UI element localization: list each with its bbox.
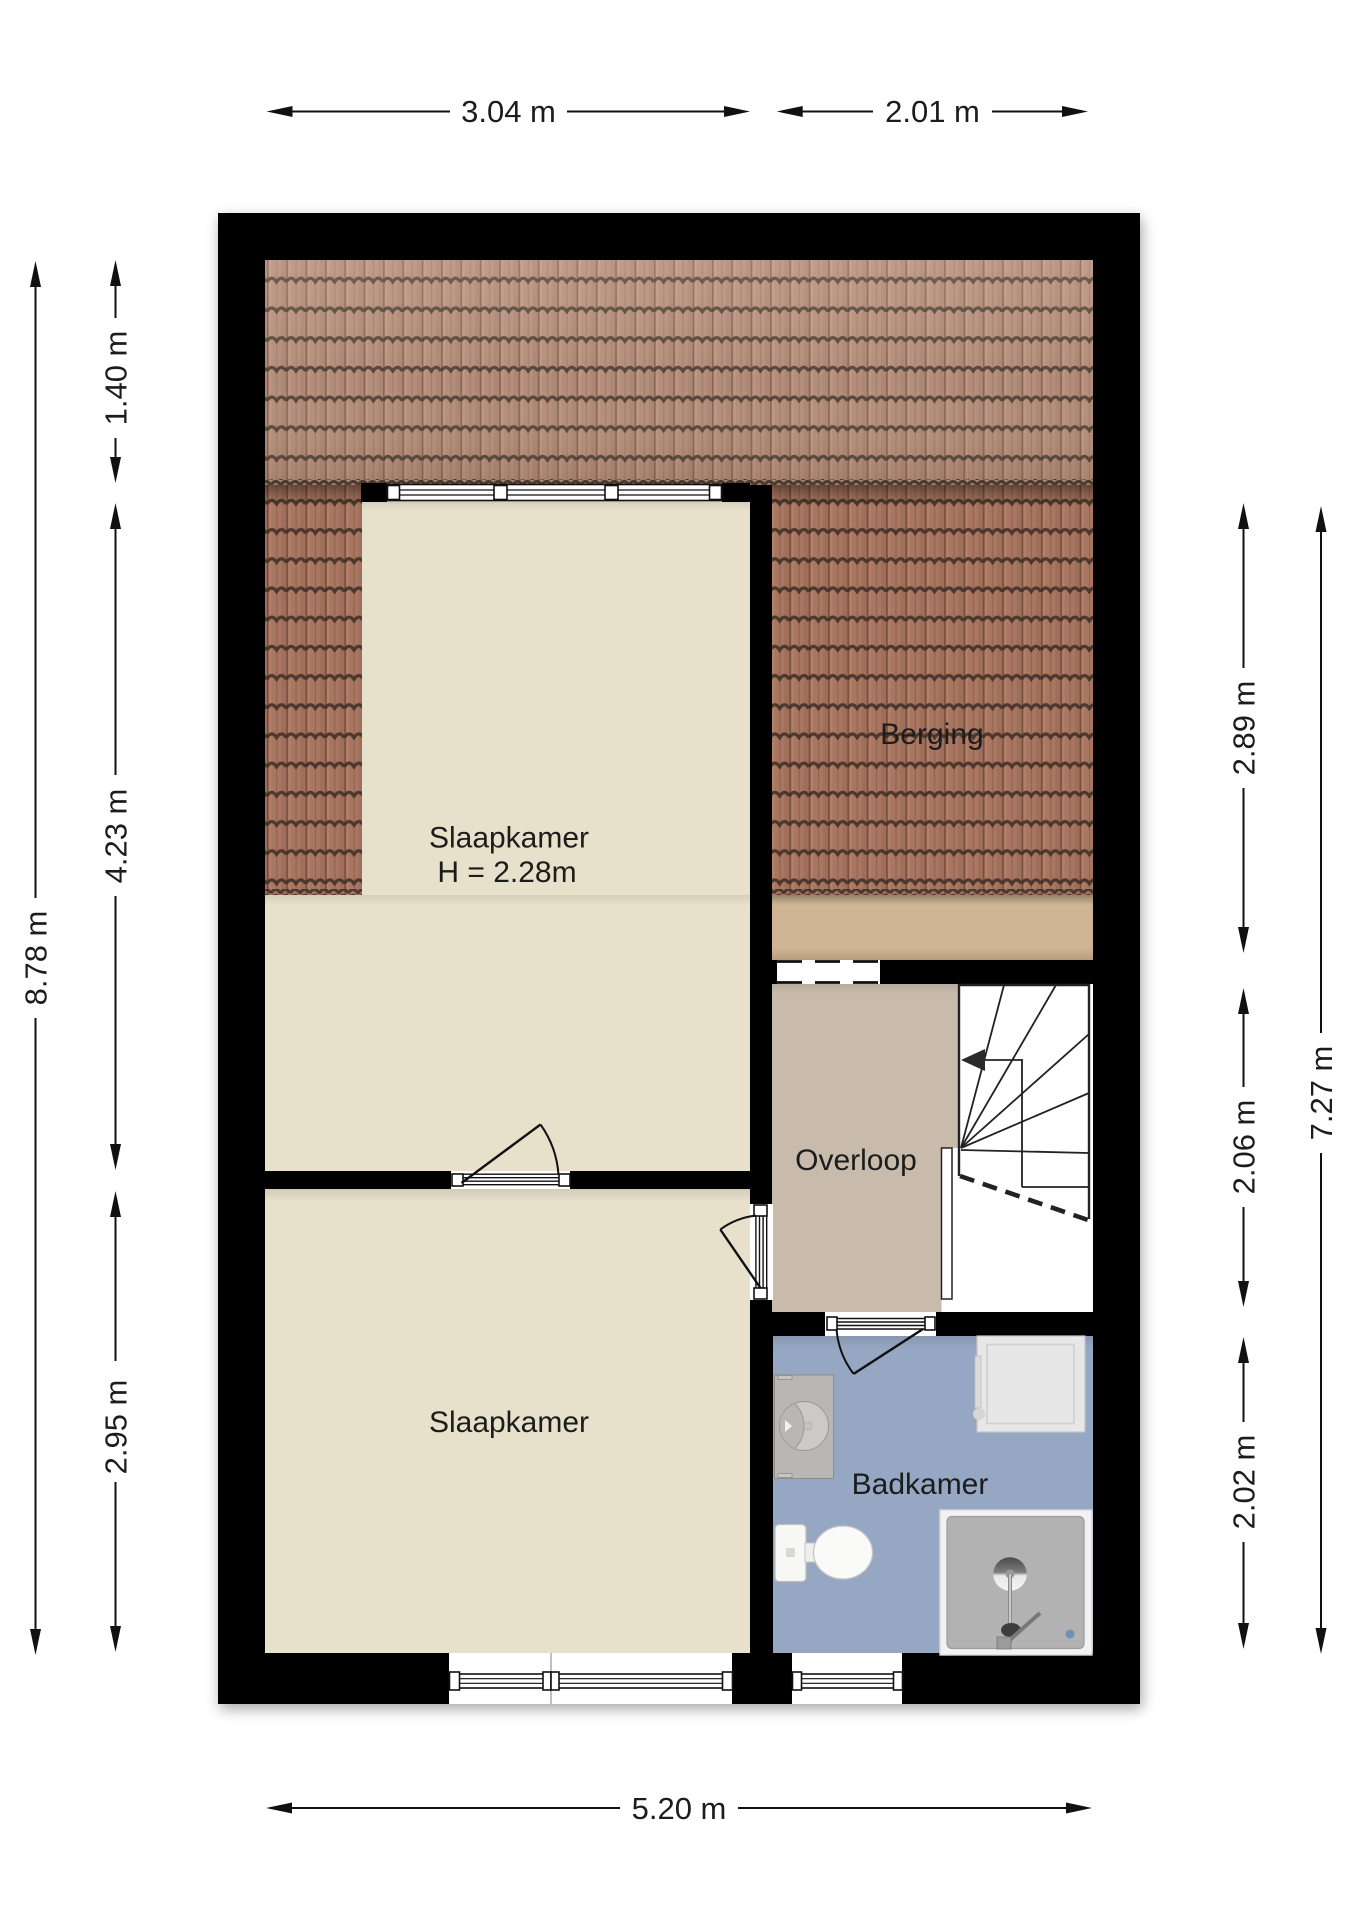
svg-text:3.04 m: 3.04 m	[461, 94, 556, 129]
svg-text:2.89 m: 2.89 m	[1227, 681, 1262, 776]
svg-text:8.78 m: 8.78 m	[19, 911, 54, 1006]
svg-text:5.20 m: 5.20 m	[632, 1791, 727, 1826]
svg-text:H = 2.28m: H = 2.28m	[437, 856, 576, 889]
svg-text:1.40 m: 1.40 m	[99, 331, 134, 426]
svg-text:2.95 m: 2.95 m	[99, 1380, 134, 1475]
svg-text:Slaapkamer: Slaapkamer	[429, 822, 589, 855]
svg-text:7.27 m: 7.27 m	[1304, 1046, 1339, 1141]
svg-text:Overloop: Overloop	[795, 1144, 917, 1177]
svg-text:2.06 m: 2.06 m	[1227, 1100, 1262, 1195]
svg-text:2.01 m: 2.01 m	[885, 94, 980, 129]
svg-text:Berging: Berging	[880, 718, 983, 751]
svg-text:Slaapkamer: Slaapkamer	[429, 1406, 589, 1439]
svg-text:2.02 m: 2.02 m	[1227, 1435, 1262, 1530]
svg-text:Badkamer: Badkamer	[852, 1468, 989, 1501]
svg-text:4.23 m: 4.23 m	[99, 789, 134, 884]
